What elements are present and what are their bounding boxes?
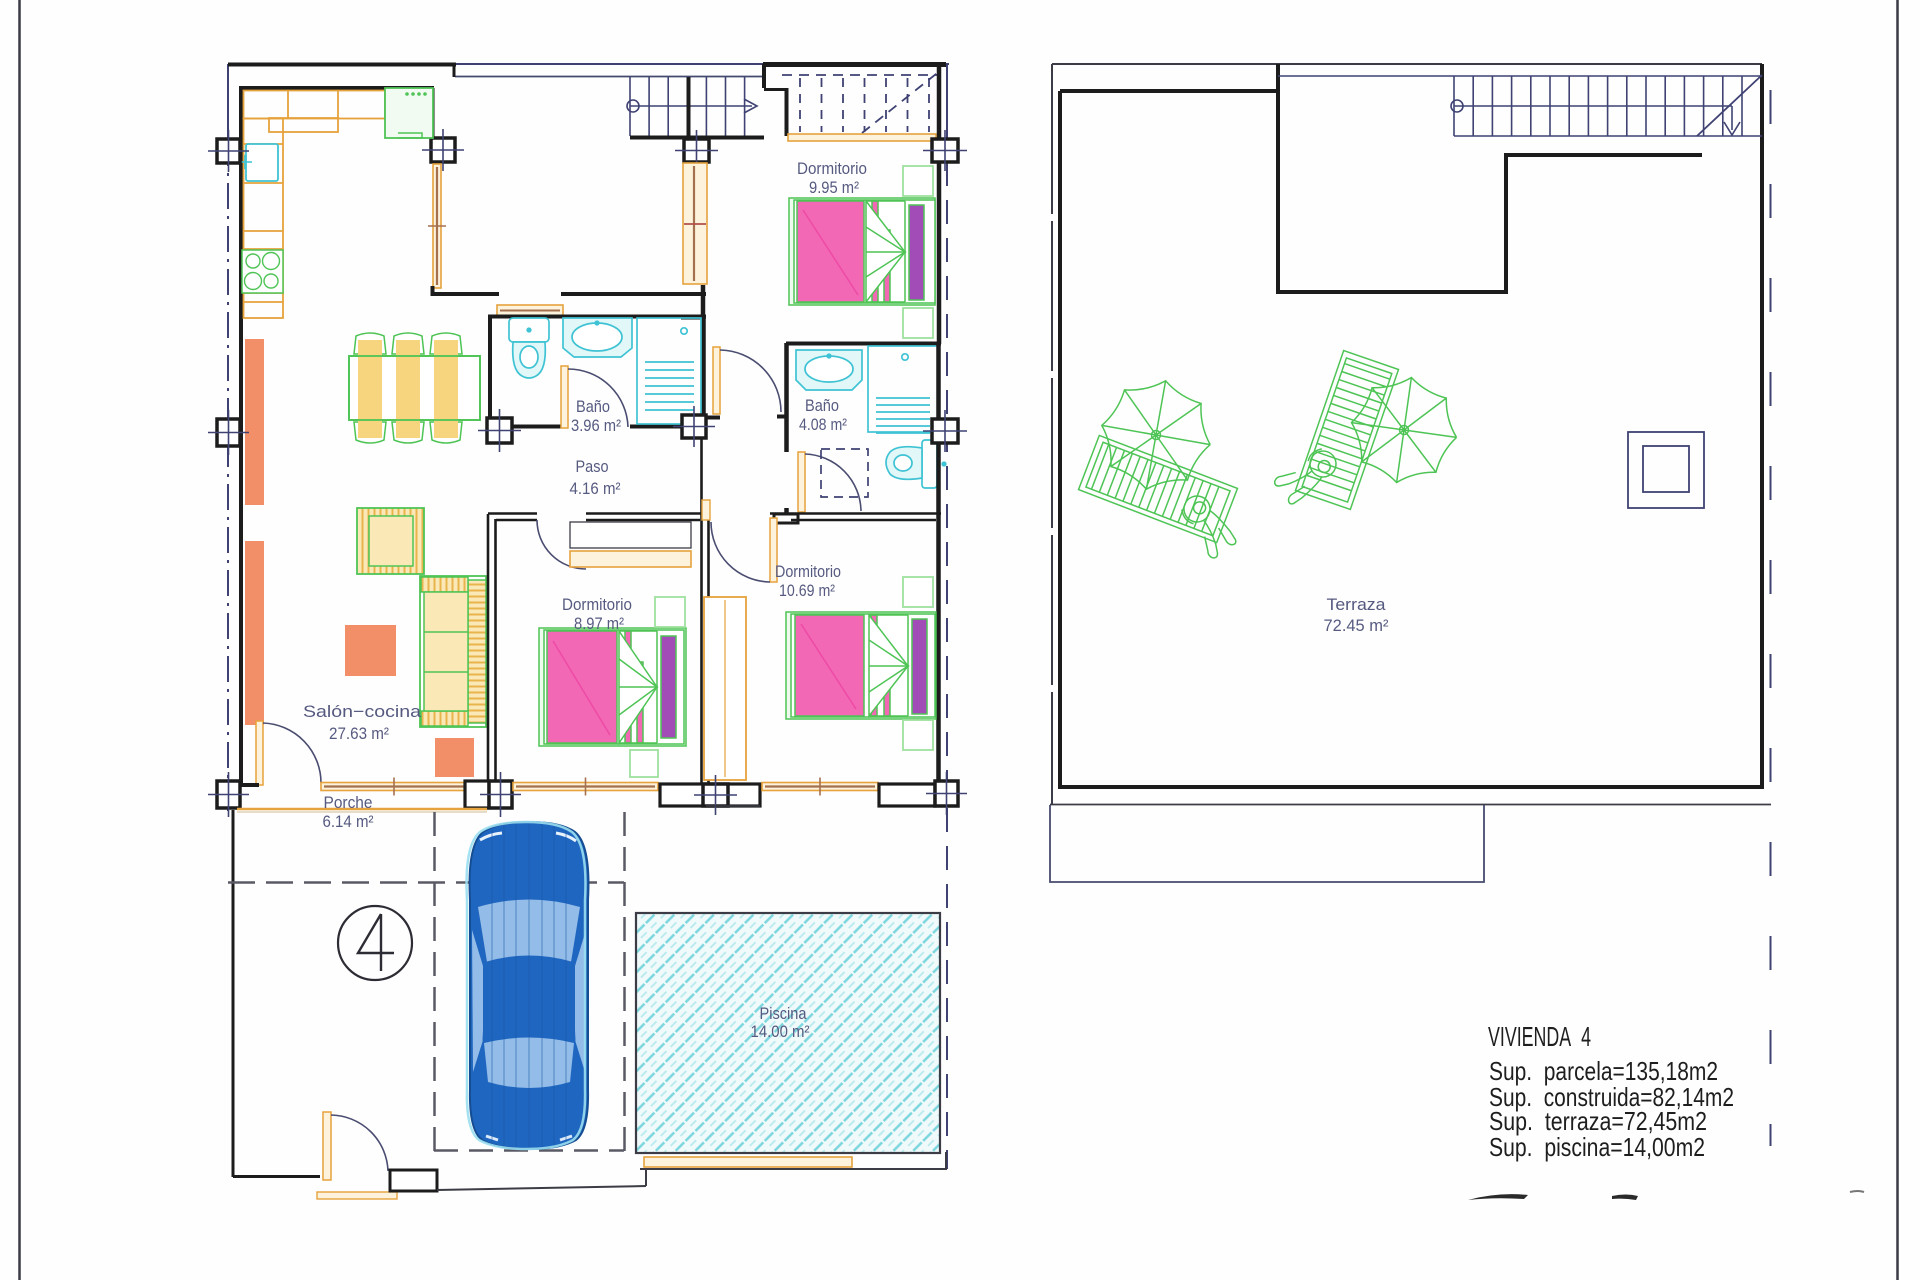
svg-text:14.00 m²: 14.00 m² bbox=[751, 1023, 810, 1041]
svg-text:VIVIENDA 4: VIVIENDA 4 bbox=[1488, 1021, 1591, 1052]
svg-text:Terraza: Terraza bbox=[1327, 596, 1387, 614]
svg-text:Salón−cocina: Salón−cocina bbox=[303, 702, 422, 721]
svg-text:Baño: Baño bbox=[805, 396, 839, 415]
svg-text:10.69 m²: 10.69 m² bbox=[779, 581, 835, 600]
svg-text:9.95 m²: 9.95 m² bbox=[809, 178, 859, 197]
svg-text:Sup. piscina=14,00m2: Sup. piscina=14,00m2 bbox=[1489, 1132, 1705, 1162]
svg-text:3.96 m²: 3.96 m² bbox=[571, 416, 621, 435]
svg-text:Paso: Paso bbox=[576, 457, 609, 476]
svg-text:27.63 m²: 27.63 m² bbox=[329, 724, 389, 743]
svg-text:Dormitorio: Dormitorio bbox=[775, 562, 841, 581]
svg-text:Dormitorio: Dormitorio bbox=[797, 159, 867, 178]
svg-text:8.97 m²: 8.97 m² bbox=[574, 614, 624, 633]
svg-text:4.16 m²: 4.16 m² bbox=[570, 479, 621, 498]
svg-text:Dormitorio: Dormitorio bbox=[562, 595, 632, 614]
svg-text:Piscina: Piscina bbox=[760, 1005, 808, 1023]
svg-text:4.08 m²: 4.08 m² bbox=[799, 415, 847, 434]
svg-text:Baño: Baño bbox=[576, 397, 610, 416]
svg-text:6.14 m²: 6.14 m² bbox=[323, 813, 374, 831]
svg-text:72.45 m²: 72.45 m² bbox=[1324, 617, 1389, 635]
svg-text:Porche: Porche bbox=[324, 794, 373, 812]
